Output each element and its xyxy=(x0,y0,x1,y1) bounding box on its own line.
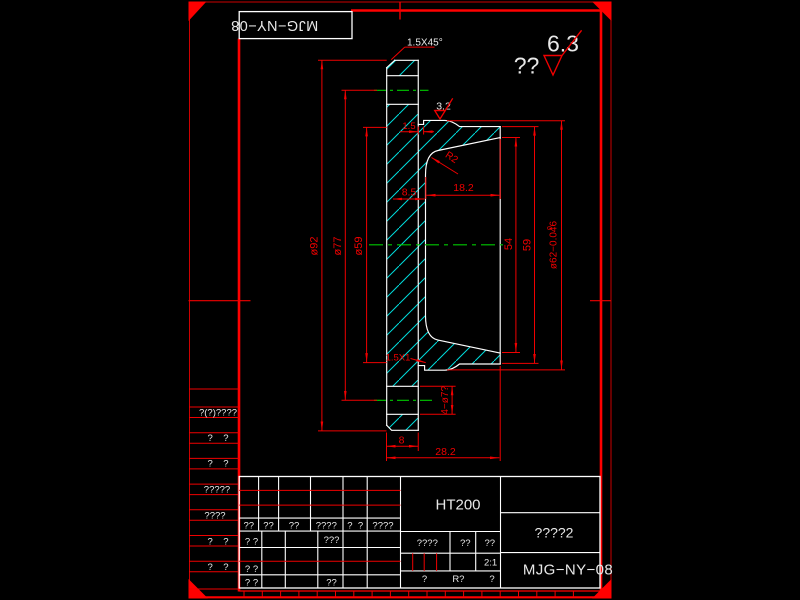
svg-text:? ?: ? ? xyxy=(207,433,228,444)
svg-text:??: ?? xyxy=(244,520,255,531)
svg-text:8.5: 8.5 xyxy=(402,187,417,199)
svg-text:??: ?? xyxy=(514,53,540,79)
svg-text:? ?: ? ? xyxy=(207,537,228,548)
svg-text:ø59: ø59 xyxy=(353,237,365,256)
svg-text:?: ? xyxy=(489,574,494,585)
svg-text:????: ???? xyxy=(372,520,393,531)
svg-text:ø77: ø77 xyxy=(332,237,344,256)
svg-text:0: 0 xyxy=(547,226,554,230)
svg-text:? ?: ? ? xyxy=(347,520,363,531)
svg-text:?????: ????? xyxy=(204,484,230,495)
svg-text:???: ??? xyxy=(324,535,340,546)
svg-text:??: ?? xyxy=(289,520,300,531)
svg-text:ø92: ø92 xyxy=(309,237,321,256)
svg-text:? ?: ? ? xyxy=(207,459,228,470)
svg-text:?: ? xyxy=(422,574,427,585)
svg-text:MJG−NY−08: MJG−NY−08 xyxy=(231,17,318,33)
svg-text:54: 54 xyxy=(503,238,515,250)
svg-text:8: 8 xyxy=(399,435,405,447)
svg-text:????: ???? xyxy=(417,538,438,549)
svg-text:??: ?? xyxy=(326,578,337,589)
svg-text:??: ?? xyxy=(460,538,471,549)
svg-text:? ?: ? ? xyxy=(245,564,258,575)
svg-text:18.2: 18.2 xyxy=(453,182,474,194)
svg-text:HT200: HT200 xyxy=(435,497,480,514)
svg-text:? ?: ? ? xyxy=(245,578,258,589)
svg-text:1.5X1: 1.5X1 xyxy=(386,353,411,364)
svg-text:59: 59 xyxy=(522,239,534,251)
svg-text:????: ???? xyxy=(204,511,225,522)
svg-text:4−ø7?: 4−ø7? xyxy=(440,386,451,415)
svg-text:28.2: 28.2 xyxy=(435,446,456,458)
svg-text:?(?)????: ?(?)???? xyxy=(199,408,237,419)
svg-text:6.3: 6.3 xyxy=(547,31,579,57)
svg-text:? ?: ? ? xyxy=(245,536,258,547)
svg-text:R?: R? xyxy=(452,574,464,585)
svg-text:? ?: ? ? xyxy=(207,562,228,573)
svg-text:2:1: 2:1 xyxy=(484,557,497,568)
svg-text:??: ?? xyxy=(485,538,496,549)
svg-text:1.5: 1.5 xyxy=(402,121,415,132)
svg-text:????2: ????2 xyxy=(535,525,574,541)
svg-text:MJG−NY−08: MJG−NY−08 xyxy=(523,562,613,579)
svg-text:????: ???? xyxy=(316,520,337,531)
svg-text:??: ?? xyxy=(263,520,274,531)
